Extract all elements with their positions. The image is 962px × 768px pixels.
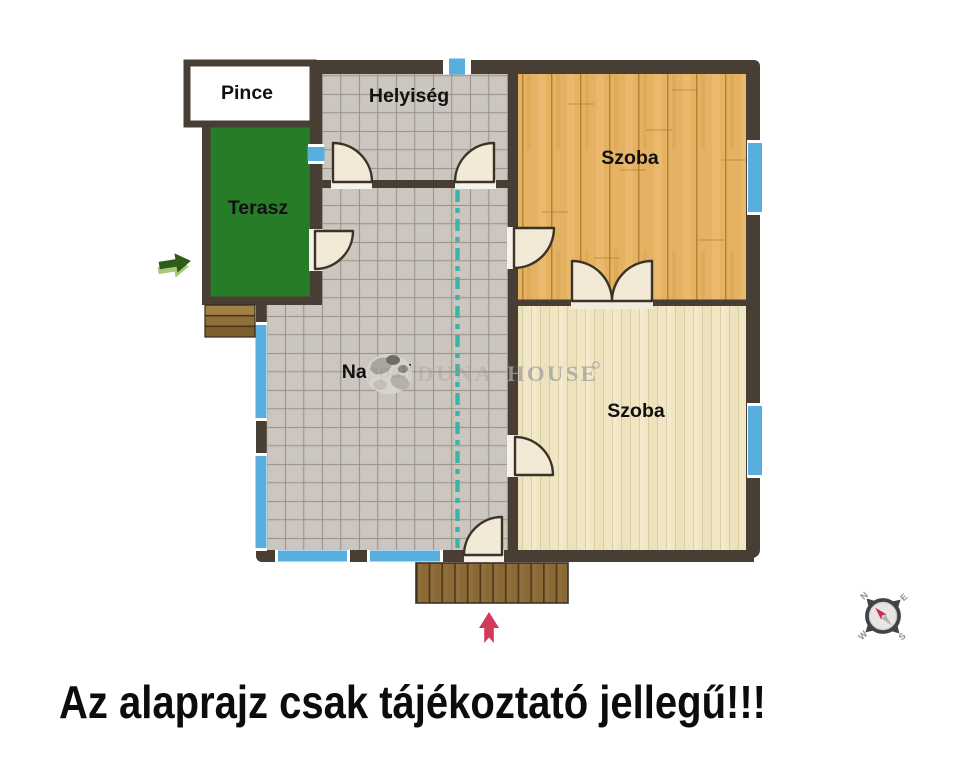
- svg-text:HOUSE: HOUSE: [507, 361, 598, 386]
- svg-text:DUNA: DUNA: [417, 361, 494, 386]
- svg-text:Terasz: Terasz: [228, 197, 289, 219]
- svg-text:Szoba: Szoba: [607, 400, 665, 422]
- svg-text:Szoba: Szoba: [601, 147, 659, 169]
- svg-text:Az alaprajz csak tájékoztató j: Az alaprajz csak tájékoztató jellegű!!!: [59, 676, 766, 728]
- svg-text:Pince: Pince: [221, 82, 273, 104]
- svg-text:Helyiség: Helyiség: [369, 85, 449, 107]
